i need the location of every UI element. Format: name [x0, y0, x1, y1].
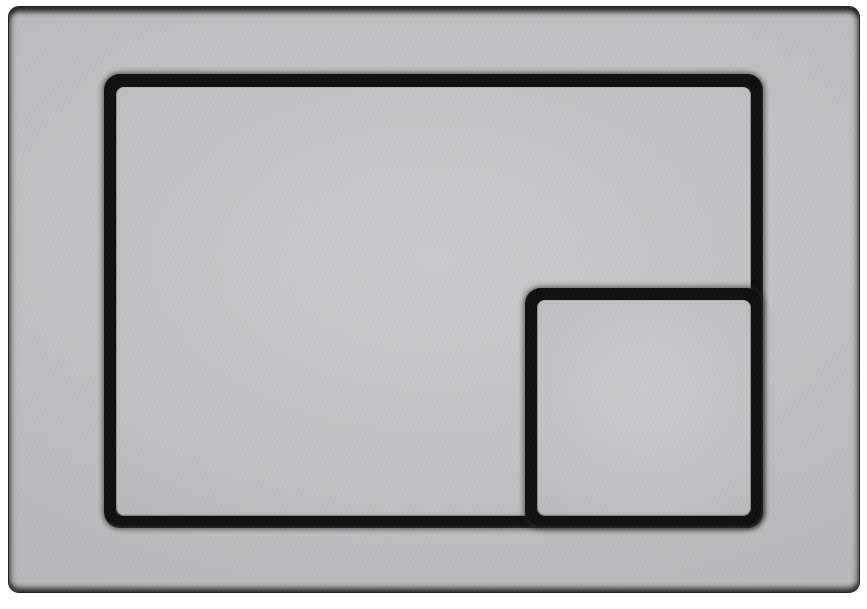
product-photo-canvas	[0, 0, 867, 609]
flush-plate	[8, 6, 860, 593]
small-flush-button[interactable]	[537, 300, 751, 516]
